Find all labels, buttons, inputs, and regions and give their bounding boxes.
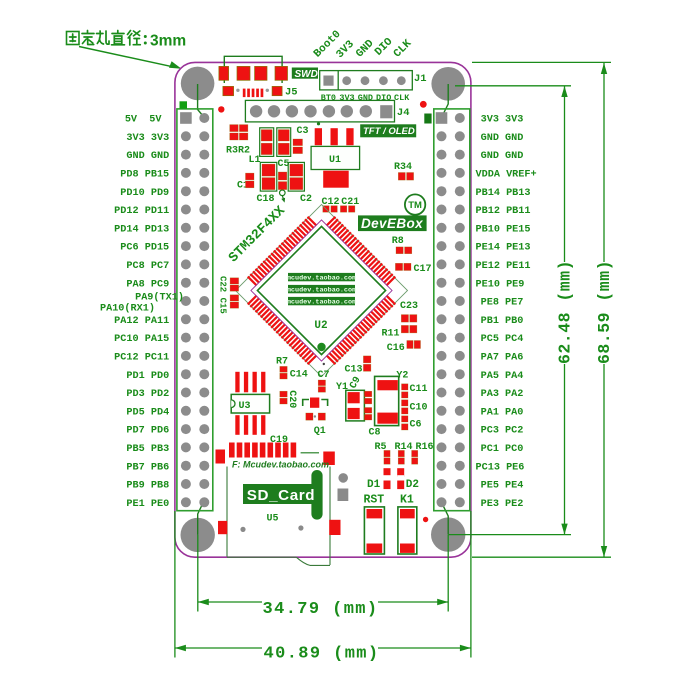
- svg-text:PC5 PC4: PC5 PC4: [481, 334, 524, 345]
- svg-text:PB1 PB0: PB1 PB0: [481, 316, 524, 327]
- svg-text:PD5 PD4: PD5 PD4: [126, 407, 169, 418]
- svg-text:PD8 PB15: PD8 PB15: [120, 170, 169, 181]
- svg-text:40.89 (mm): 40.89 (mm): [263, 645, 379, 664]
- svg-text:PE1 PE0: PE1 PE0: [126, 499, 169, 510]
- svg-text:PB5 PB3: PB5 PB3: [126, 444, 169, 455]
- svg-text:C17: C17: [414, 264, 432, 275]
- svg-text:C22 C15: C22 C15: [217, 276, 227, 314]
- svg-text:68.59 (mm): 68.59 (mm): [595, 260, 614, 364]
- svg-text:PB14 PB13: PB14 PB13: [476, 188, 531, 199]
- svg-text:PE14 PE13: PE14 PE13: [476, 243, 531, 254]
- svg-text:GND GND: GND GND: [481, 151, 524, 162]
- svg-text:PC1 PC0: PC1 PC0: [481, 444, 524, 455]
- svg-text:PA7 PA6: PA7 PA6: [481, 353, 524, 364]
- svg-text:Q1: Q1: [314, 426, 326, 437]
- svg-text:PE3 PE2: PE3 PE2: [481, 499, 524, 510]
- svg-text:PD3 PD2: PD3 PD2: [126, 389, 169, 400]
- svg-text:PA8 PC9: PA8 PC9: [126, 279, 169, 290]
- svg-text:J1: J1: [414, 73, 427, 85]
- svg-text:R16: R16: [416, 442, 434, 453]
- svg-text:C8: C8: [369, 428, 381, 439]
- svg-text:PA12 PA11: PA12 PA11: [114, 316, 169, 327]
- svg-text:J5: J5: [285, 87, 298, 99]
- svg-text:PA3 PA2: PA3 PA2: [481, 389, 524, 400]
- svg-text:L1: L1: [249, 155, 261, 166]
- svg-text:F: Mcudev.taobao.com: F: Mcudev.taobao.com: [232, 459, 329, 469]
- svg-text:5V 5V: 5V 5V: [125, 115, 163, 126]
- svg-text:C3: C3: [297, 126, 309, 137]
- svg-text:PD12 PD11: PD12 PD11: [114, 206, 169, 217]
- svg-text:PC6 PD15: PC6 PD15: [120, 243, 169, 254]
- svg-text:U1: U1: [329, 155, 341, 166]
- svg-text:R11: R11: [382, 328, 400, 339]
- svg-text:mcudev.taobao.com: mcudev.taobao.com: [287, 299, 356, 307]
- svg-text:K1: K1: [400, 494, 414, 507]
- svg-text:VDDA VREF+: VDDA VREF+: [476, 170, 537, 181]
- svg-text:C16: C16: [387, 343, 405, 354]
- svg-text:34.79 (mm): 34.79 (mm): [262, 600, 378, 619]
- svg-text:C23: C23: [400, 301, 418, 312]
- svg-text:C20: C20: [286, 390, 297, 408]
- svg-text:U3: U3: [239, 401, 251, 412]
- svg-text:R3R2: R3R2: [226, 146, 250, 157]
- svg-text:C14: C14: [290, 370, 308, 381]
- svg-text:DIO: DIO: [376, 93, 391, 103]
- svg-text:62.48 (mm): 62.48 (mm): [556, 260, 575, 364]
- svg-text:PE8 PE7: PE8 PE7: [481, 298, 524, 309]
- svg-text:PB9 PB8: PB9 PB8: [126, 481, 169, 492]
- svg-text:PA9(TX1): PA9(TX1): [135, 292, 184, 304]
- svg-text:3mm: 3mm: [150, 33, 186, 50]
- svg-text:R7: R7: [276, 356, 288, 367]
- svg-text:C13: C13: [345, 365, 363, 376]
- svg-text:C18: C18: [257, 194, 275, 205]
- svg-text:DevEBox: DevEBox: [361, 216, 423, 231]
- svg-text:D1: D1: [367, 479, 381, 491]
- svg-text:GND GND: GND GND: [126, 151, 169, 162]
- svg-text:C7: C7: [318, 370, 330, 381]
- svg-text:R8: R8: [392, 236, 404, 247]
- svg-text:PD14 PD13: PD14 PD13: [114, 224, 169, 235]
- svg-text:PC8 PC7: PC8 PC7: [126, 261, 169, 272]
- svg-text:GND: GND: [358, 93, 373, 103]
- svg-text:PC12 PC11: PC12 PC11: [114, 353, 169, 364]
- svg-text:C10: C10: [410, 403, 428, 414]
- svg-text:PE10 PE9: PE10 PE9: [476, 279, 525, 290]
- svg-text:RST: RST: [364, 494, 385, 507]
- svg-text:PA5 PA4: PA5 PA4: [481, 371, 524, 382]
- svg-text:PA10(RX1): PA10(RX1): [100, 303, 155, 315]
- svg-text:3V3 3V3: 3V3 3V3: [481, 115, 524, 126]
- svg-text:CLK: CLK: [394, 93, 410, 103]
- svg-text:J4: J4: [397, 107, 410, 119]
- svg-text:mcudev.taobao.com: mcudev.taobao.com: [287, 287, 356, 295]
- svg-text:PB10 PE15: PB10 PE15: [476, 224, 531, 235]
- svg-text:R34: R34: [394, 162, 412, 173]
- svg-text:PD7 PD6: PD7 PD6: [126, 426, 169, 437]
- svg-text:PD1 PD0: PD1 PD0: [126, 371, 169, 382]
- svg-text:PE12 PE11: PE12 PE11: [476, 261, 531, 272]
- svg-text:PB7 PB6: PB7 PB6: [126, 462, 169, 473]
- svg-text:PA1 PA0: PA1 PA0: [481, 407, 524, 418]
- svg-text:3V3 3V3: 3V3 3V3: [126, 133, 169, 144]
- svg-text:PC3 PC2: PC3 PC2: [481, 426, 524, 437]
- svg-text:SWD: SWD: [295, 69, 318, 80]
- svg-text:mcudev.taobao.com: mcudev.taobao.com: [287, 275, 356, 283]
- svg-text:PB12 PB11: PB12 PB11: [476, 206, 531, 217]
- svg-text:U2: U2: [314, 320, 327, 332]
- svg-text:PD10 PD9: PD10 PD9: [120, 188, 169, 199]
- svg-text:SD_Card: SD_Card: [247, 487, 315, 504]
- svg-text:C11: C11: [410, 384, 428, 395]
- svg-text:PC13 PE6: PC13 PE6: [476, 462, 525, 473]
- svg-text:C6: C6: [410, 419, 422, 430]
- svg-text:3V3: 3V3: [339, 93, 354, 103]
- svg-text:TFT / OLED: TFT / OLED: [363, 126, 415, 137]
- svg-text:GND GND: GND GND: [481, 133, 524, 144]
- svg-text:PE5 PE4: PE5 PE4: [481, 481, 524, 492]
- svg-text:BT0: BT0: [321, 93, 336, 103]
- svg-text:TM: TM: [408, 200, 422, 211]
- svg-text:U5: U5: [267, 514, 279, 525]
- svg-text:D2: D2: [406, 479, 419, 491]
- svg-text:C2: C2: [300, 194, 312, 205]
- svg-text:PC10 PA15: PC10 PA15: [114, 334, 169, 345]
